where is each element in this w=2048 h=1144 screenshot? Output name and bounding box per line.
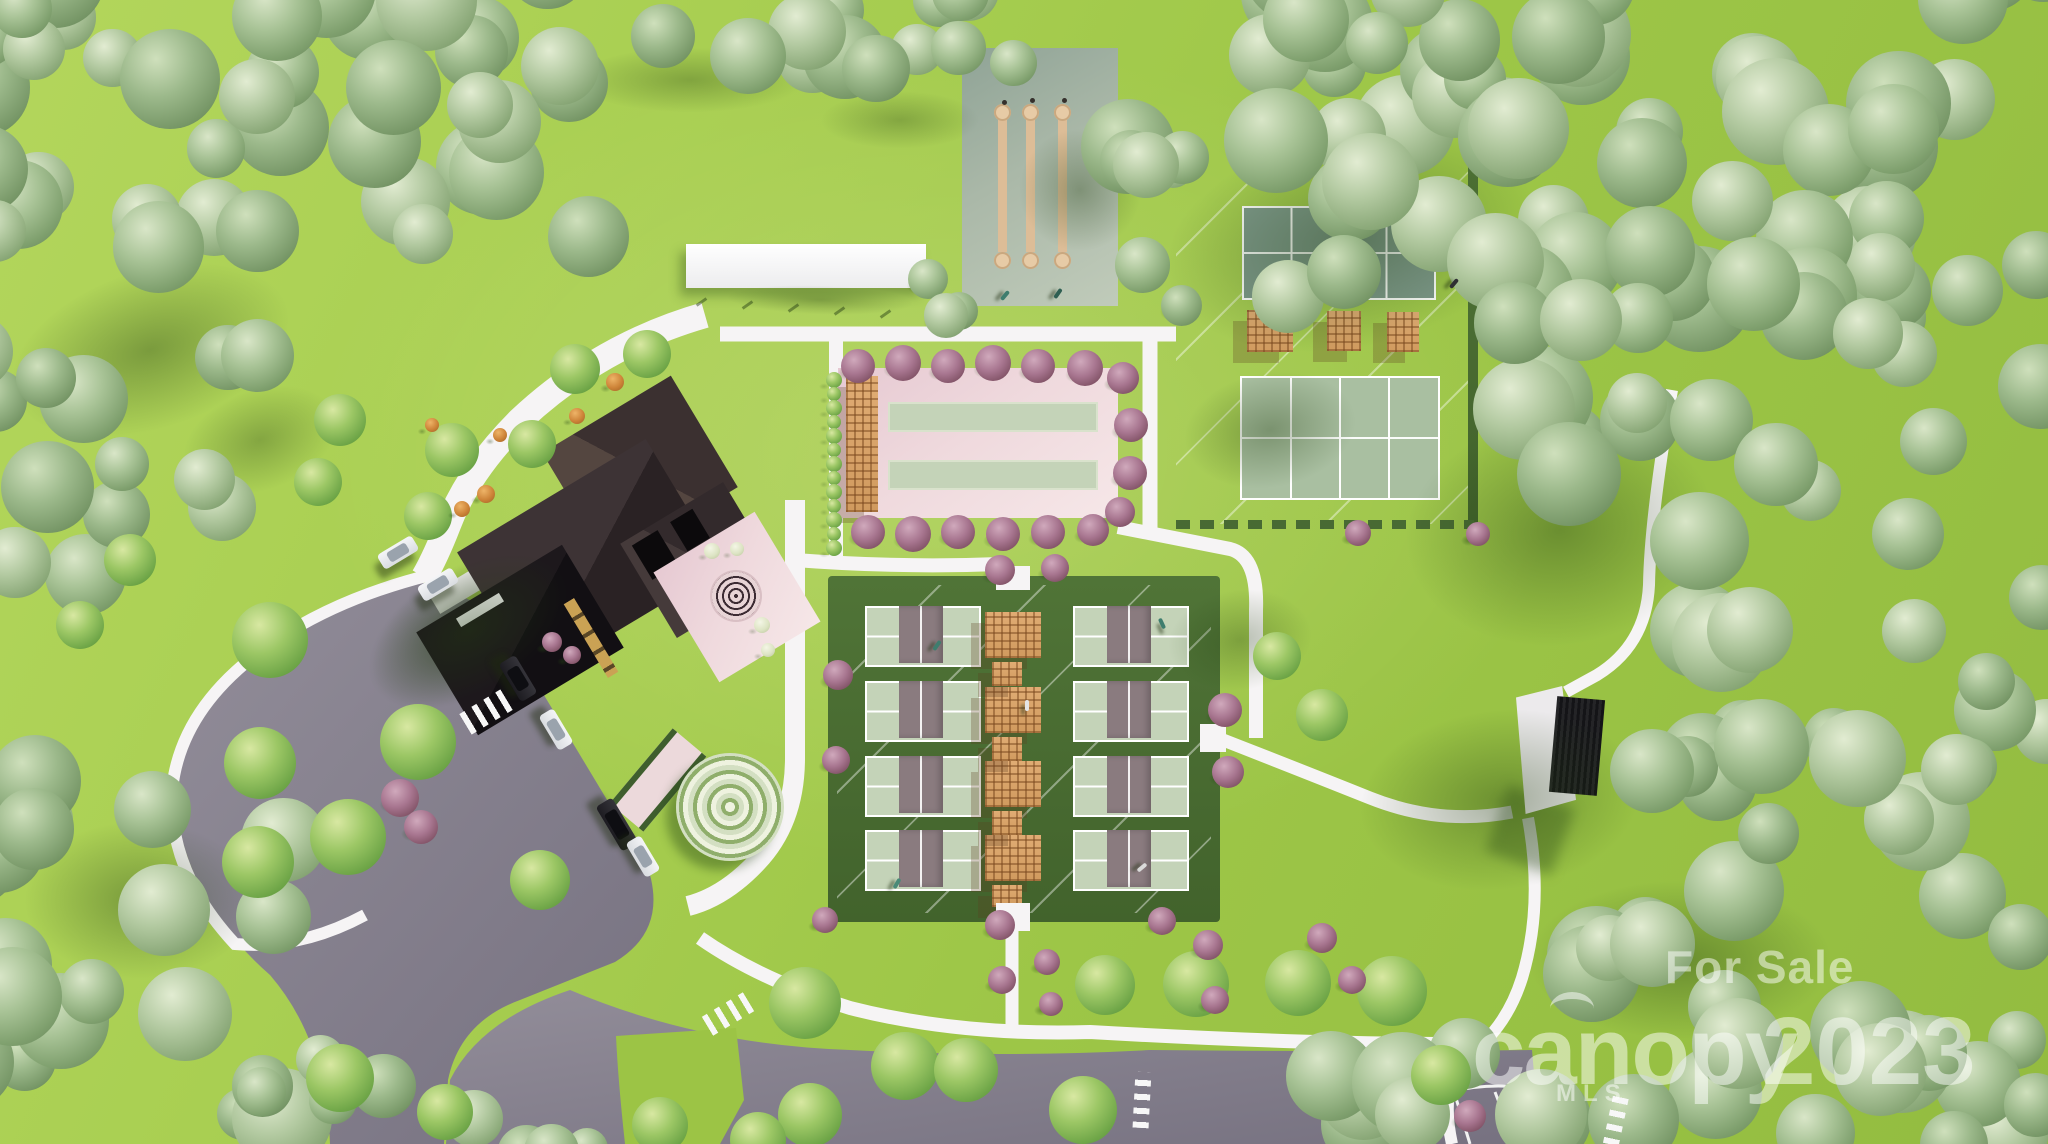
flowering-tree — [823, 660, 853, 690]
forest-tree — [1872, 498, 1944, 570]
flowering-tree — [1338, 966, 1366, 994]
pickleball-pergola — [985, 761, 1041, 807]
bocce-trellis — [846, 376, 878, 512]
forest-tree — [924, 293, 969, 338]
forest-tree — [990, 40, 1036, 86]
lawn-tree — [294, 458, 342, 506]
forest-tree — [1958, 653, 2015, 710]
spiral-garden — [676, 753, 784, 861]
lawn-tree — [314, 394, 366, 446]
pickleball-net-band — [1107, 756, 1151, 813]
forest-tree — [1650, 492, 1749, 591]
pickleball-pergola — [985, 687, 1041, 733]
forest-tree — [447, 72, 513, 138]
forest-tree — [219, 59, 294, 134]
lawn-tree — [306, 1044, 374, 1112]
flowering-tree — [941, 515, 975, 549]
flowering-tree — [1466, 522, 1490, 546]
forest-tree — [113, 201, 205, 293]
pickleball-arbor — [992, 662, 1022, 686]
forest-tree — [1346, 12, 1408, 74]
lawn-tree — [1265, 950, 1331, 1016]
pickleball-net-band — [899, 756, 943, 813]
shuffleboard-marker — [1062, 98, 1067, 103]
lawn-tree — [1075, 955, 1135, 1015]
flowering-tree — [1193, 930, 1223, 960]
forest-tree — [1161, 285, 1202, 326]
flowering-tree — [1031, 515, 1065, 549]
flowering-tree — [851, 515, 885, 549]
forest-tree — [1597, 118, 1688, 209]
forest-tree — [95, 437, 149, 491]
forest-tree — [1307, 235, 1381, 309]
orange-shrub — [606, 373, 624, 391]
shuffleboard-marker — [1030, 98, 1035, 103]
lawn-tree — [1357, 956, 1427, 1026]
forest-tree — [1610, 729, 1694, 813]
forest-tree — [631, 4, 695, 68]
forest-tree — [1714, 699, 1809, 794]
pickleball-arbor — [992, 737, 1022, 761]
forest-tree — [1468, 78, 1569, 179]
lawn-tree — [310, 799, 386, 875]
patio-rose-medallion — [712, 572, 760, 620]
forest-tree — [548, 196, 629, 277]
forest-tree — [120, 29, 220, 129]
flowering-tree — [1107, 362, 1139, 394]
forest-tree — [118, 864, 209, 955]
pickleball-net-band — [899, 830, 943, 887]
shuffleboard-lane-end — [994, 252, 1011, 269]
flowering-tree — [1345, 520, 1371, 546]
forest-tree — [1517, 422, 1621, 526]
pickleball-net-band — [899, 681, 943, 738]
forest-tree — [931, 21, 985, 75]
forest-tree — [174, 449, 235, 510]
lawn-tree — [222, 826, 294, 898]
lawn-tree — [769, 967, 841, 1039]
lawn-tree — [871, 1032, 939, 1100]
flower-shrub — [730, 542, 744, 556]
forest-tree — [393, 204, 453, 264]
forest-tree — [216, 190, 299, 273]
flowering-tree — [975, 345, 1011, 381]
crosswalk — [1133, 1072, 1152, 1129]
flowering-tree — [1034, 949, 1060, 975]
forest-tree — [1224, 88, 1329, 193]
forest-tree — [710, 18, 786, 94]
pickleball-net-band — [1107, 830, 1151, 887]
lawn-tree — [104, 534, 156, 586]
watermark-logo-arc — [1550, 992, 1594, 1025]
forest-tree — [1882, 599, 1946, 663]
flowering-tree — [404, 810, 438, 844]
flowering-tree — [1067, 350, 1103, 386]
bocce-lane — [888, 402, 1098, 432]
watermark-logo: canopy — [1472, 1004, 1796, 1100]
lawn-tree — [1049, 1076, 1117, 1144]
orange-shrub — [493, 428, 507, 442]
forest-tree — [1738, 803, 1799, 864]
forest-tree — [1833, 298, 1904, 369]
flowering-tree — [985, 910, 1015, 940]
pickleball-net-band — [1107, 681, 1151, 738]
forest-tree — [842, 35, 909, 102]
bocce-lane — [888, 460, 1098, 490]
flowering-tree — [563, 646, 581, 664]
forest-tree — [1988, 904, 2048, 970]
forest-tree — [1, 441, 94, 534]
flowering-tree — [985, 555, 1015, 585]
flowering-tree — [542, 632, 562, 652]
forest-tree — [1847, 233, 1915, 301]
forest-tree — [1607, 373, 1667, 433]
forest-tree — [59, 959, 124, 1024]
flowering-tree — [812, 907, 838, 933]
forest-tree — [1932, 255, 2003, 326]
flowering-tree — [1105, 497, 1135, 527]
flowering-tree — [885, 345, 921, 381]
forest-tree — [16, 348, 76, 408]
pickleball-net-band — [899, 606, 943, 663]
flowering-tree — [1307, 923, 1337, 953]
flowering-tree — [1148, 907, 1176, 935]
lawn-tree — [380, 704, 456, 780]
orange-shrub — [477, 485, 495, 503]
pickleball-pergola — [985, 612, 1041, 658]
lawn-tree — [934, 1038, 998, 1102]
flowering-tree — [988, 966, 1016, 994]
watermark-for-sale: For Sale — [1665, 944, 1855, 990]
watermark-mls: MLS — [1556, 1082, 1628, 1106]
forest-tree — [1605, 206, 1696, 297]
forest-tree — [1322, 133, 1419, 230]
orange-shrub — [569, 408, 585, 424]
lawn-tree — [417, 1084, 473, 1140]
forest-tree — [237, 1067, 287, 1117]
lawn-tree — [550, 344, 600, 394]
lawn-tree — [56, 601, 104, 649]
lawn-tree — [232, 602, 308, 678]
flowering-tree — [1212, 756, 1244, 788]
pickleball-pergola — [985, 835, 1041, 881]
forest-tree — [1707, 237, 1800, 330]
lawn-tree — [510, 850, 570, 910]
lawn-tree — [404, 492, 452, 540]
flowering-tree — [1021, 349, 1055, 383]
forest-tree — [1692, 161, 1772, 241]
orange-shrub — [454, 501, 470, 517]
lawn-tree — [508, 420, 556, 468]
flowering-tree — [1208, 693, 1242, 727]
lawn-tree — [1411, 1045, 1471, 1105]
flower-shrub — [704, 543, 720, 559]
lawn-tree — [778, 1083, 842, 1144]
forest-tree — [1900, 408, 1967, 475]
flowering-tree — [1041, 554, 1069, 582]
flowering-tree — [841, 349, 875, 383]
forest-tree — [1540, 279, 1622, 361]
flower-shrub — [754, 617, 770, 633]
forest-tree — [346, 40, 441, 135]
shuffleboard-marker — [1002, 100, 1007, 105]
forest-tree — [1115, 237, 1170, 292]
flowering-tree — [931, 349, 965, 383]
forest-tree — [221, 319, 295, 393]
site-plan-stage: For Sale canopy MLS 2023 — [0, 0, 2048, 1144]
forest-tree — [1809, 710, 1906, 807]
lawn-tree — [1296, 689, 1348, 741]
forest-tree — [1113, 132, 1179, 198]
flowering-tree — [1201, 986, 1229, 1014]
forest-tree — [114, 771, 191, 848]
forest-tree — [1921, 734, 1992, 805]
lawn-tree — [623, 330, 671, 378]
flowering-tree — [1039, 992, 1063, 1016]
flowering-tree — [986, 517, 1020, 551]
lawn-tree — [224, 727, 296, 799]
flowering-tree — [822, 746, 850, 774]
forest-tree — [521, 27, 599, 105]
flowering-tree — [1113, 456, 1147, 490]
forest-tree — [1848, 84, 1939, 175]
flowering-tree — [895, 516, 931, 552]
forest-tree — [1734, 423, 1817, 506]
flowering-tree — [1114, 408, 1148, 442]
lawn-tree — [1253, 632, 1301, 680]
watermark-year: 2023 — [1762, 1004, 1976, 1100]
pickleball-arbor — [992, 811, 1022, 835]
lawn-tree — [632, 1097, 688, 1144]
forest-tree — [138, 967, 232, 1061]
bocce-pad — [838, 368, 1118, 518]
person-figure — [1025, 700, 1029, 711]
orange-shrub — [425, 418, 439, 432]
hedge-gap-path — [1200, 724, 1226, 752]
flower-shrub — [761, 643, 775, 657]
